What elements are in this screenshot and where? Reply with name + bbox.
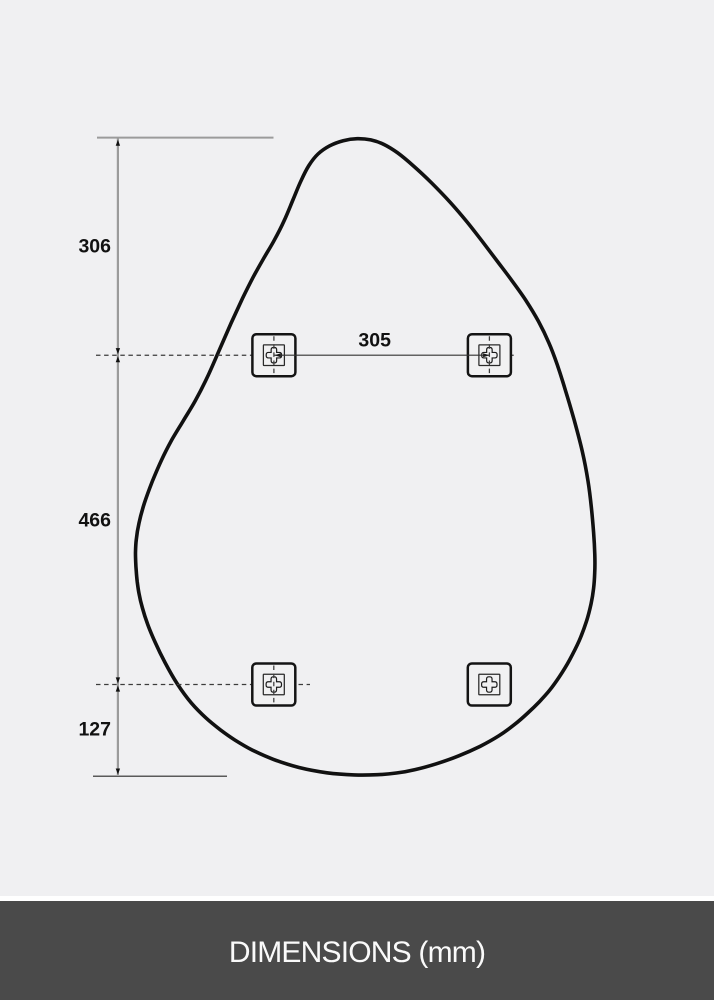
svg-text:306: 306 bbox=[78, 236, 111, 258]
svg-text:305: 305 bbox=[358, 330, 391, 352]
svg-text:127: 127 bbox=[78, 718, 111, 740]
svg-text:466: 466 bbox=[78, 510, 111, 532]
